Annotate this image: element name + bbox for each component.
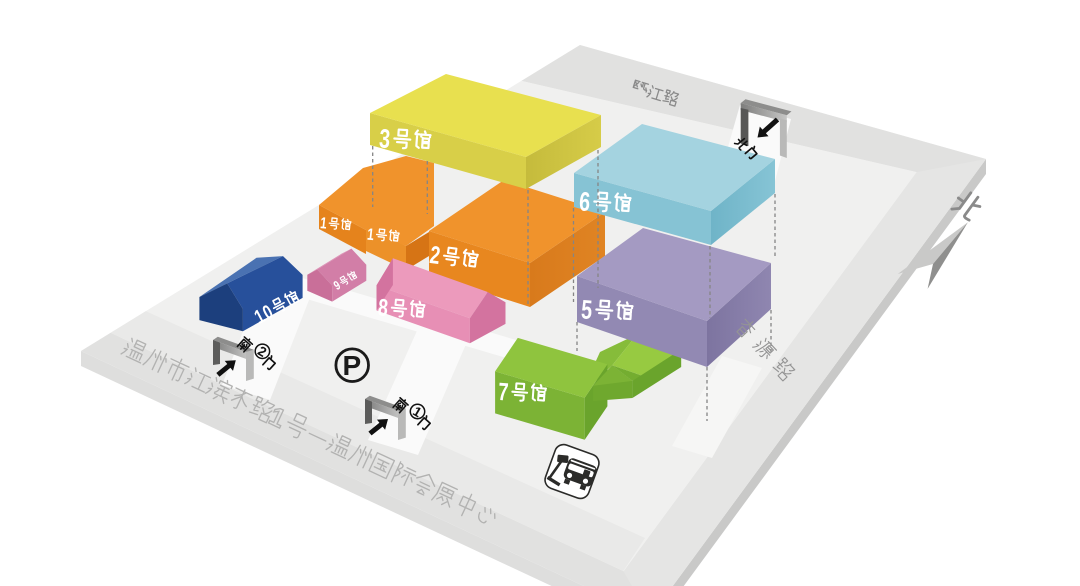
svg-text:P: P — [343, 350, 362, 381]
svg-text:7: 7 — [497, 378, 509, 407]
svg-text:6: 6 — [578, 186, 591, 217]
svg-text:5: 5 — [580, 294, 593, 325]
svg-text:3: 3 — [378, 123, 391, 154]
